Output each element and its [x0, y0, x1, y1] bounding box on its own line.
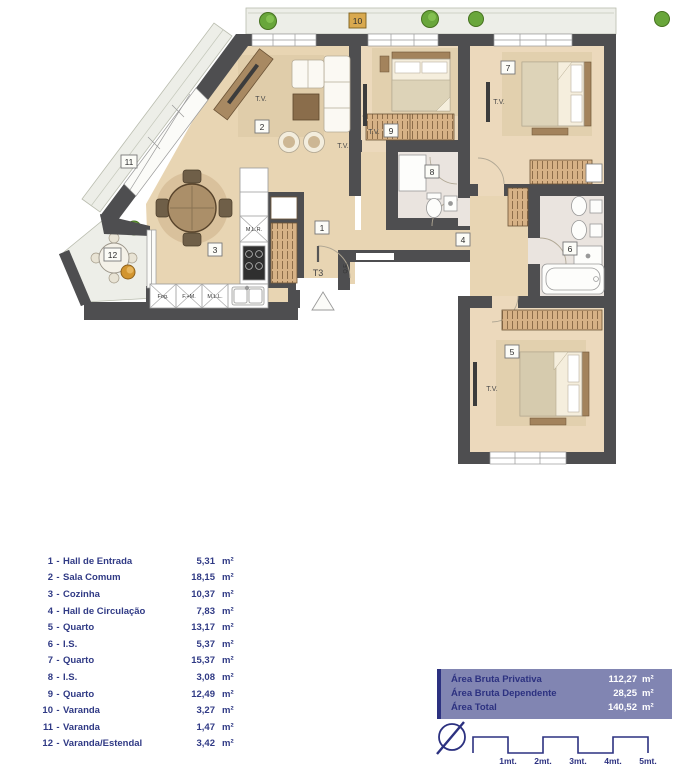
closet-corridor — [508, 188, 528, 226]
scale-tick-label: 5mt. — [639, 756, 656, 766]
window-bedroom9 — [368, 34, 438, 46]
tv-label: T.V. — [486, 386, 497, 393]
tv-wall-bracket — [363, 84, 367, 126]
legend-row: 3-Cozinha10,37m² — [38, 586, 234, 603]
plaque-8: 8 — [430, 167, 435, 177]
plaque-1: 1 — [320, 223, 325, 233]
plaque-9: 9 — [389, 126, 394, 136]
toilet-tank — [590, 224, 602, 237]
stove-label: Fog. — [157, 294, 168, 300]
patio-chair — [109, 273, 119, 283]
nightstand — [380, 56, 389, 72]
electrical-panel-niche — [356, 253, 394, 260]
floor-plan-page: 1 2 3 4 5 6 7 8 9 10 11 12 T.V. — [0, 0, 676, 771]
area-summary-table: Área Bruta Privativa 112,27 m² Área Brut… — [437, 669, 672, 719]
legend-row: 11-Varanda1,47m² — [38, 719, 234, 736]
legend-row: 2-Sala Comum18,15m² — [38, 570, 234, 587]
summary-row: Área Bruta Dependente 28,25 m² — [451, 688, 662, 700]
window-bedroom5 — [490, 452, 566, 464]
scale-tick-label: 4mt. — [604, 756, 621, 766]
scale-tick-label: 2mt. — [534, 756, 551, 766]
bidet — [572, 197, 587, 216]
sofa — [324, 56, 350, 132]
legend-row: 5-Quarto13,17m² — [38, 619, 234, 636]
room-legend: 1-Hall de Entrada5,31m² 2-Sala Comum18,1… — [38, 553, 234, 752]
shower — [399, 155, 426, 191]
summary-row: Área Bruta Privativa 112,27 m² — [451, 674, 662, 686]
scale-bar: 1mt. 2mt. 3mt. 4mt. 5mt. — [473, 737, 657, 766]
shaft-hall — [271, 197, 297, 219]
plaque-4: 4 — [461, 235, 466, 245]
apartment-type-label: T3 — [313, 268, 324, 278]
scale-tick-label: 1mt. — [499, 756, 516, 766]
cooktop — [243, 246, 265, 280]
plaque-7: 7 — [506, 63, 511, 73]
oven-microwave-label: F.+M. — [182, 294, 196, 300]
wardrobe-bedroom5 — [502, 310, 602, 330]
shaft — [586, 164, 602, 182]
summary-row: Área Total 140,52 m² — [451, 702, 662, 714]
bed-headboard — [582, 352, 589, 416]
tv-label: T.V. — [493, 99, 504, 106]
compass-and-scale: 1mt. 2mt. 3mt. 4mt. 5mt. — [430, 715, 676, 771]
legend-row: 1-Hall de Entrada5,31m² — [38, 553, 234, 570]
north-compass-icon — [437, 722, 465, 754]
plaque-2: 2 — [260, 122, 265, 132]
window-living — [252, 34, 316, 46]
bed-bench — [532, 128, 568, 135]
plaque-11: 11 — [125, 157, 134, 167]
plaque-5: 5 — [510, 347, 515, 357]
legend-row: 7-Quarto15,37m² — [38, 653, 234, 670]
bed-headboard — [392, 52, 450, 59]
tv-label: T.V. — [337, 143, 348, 150]
legend-row: 10-Varanda3,27m² — [38, 702, 234, 719]
dishwasher-label: M.L.L. — [207, 294, 223, 300]
legend-row: 8-I.S.3,08m² — [38, 669, 234, 686]
window-bedroom7 — [494, 34, 572, 46]
legend-row: 6-I.S.5,37m² — [38, 636, 234, 653]
wardrobe-bedroom7 — [530, 160, 592, 184]
glazing-kitchen-west — [147, 230, 156, 288]
plant-icon — [655, 12, 670, 27]
tv-wall-bracket — [486, 82, 490, 122]
plaque-10: 10 — [353, 16, 363, 26]
entry-marker-triangle — [312, 292, 334, 310]
scale-tick-label: 3mt. — [569, 756, 586, 766]
legend-row: 9-Quarto12,49m² — [38, 686, 234, 703]
tv-wall-bracket — [473, 362, 477, 406]
toilet — [572, 221, 587, 240]
coffee-table — [293, 94, 319, 120]
bed-bench — [530, 418, 566, 425]
electrical-panel-label: Q.E. — [343, 262, 349, 273]
floor-plan-drawing: 1 2 3 4 5 6 7 8 9 10 11 12 T.V. — [0, 0, 676, 540]
bed-headboard — [584, 62, 591, 126]
plaque-3: 3 — [213, 245, 218, 255]
legend-row: 4-Hall de Circulação7,83m² — [38, 603, 234, 620]
closet-hall — [271, 223, 297, 283]
plaque-6: 6 — [568, 244, 573, 254]
plaque-12: 12 — [108, 250, 118, 260]
toilet — [427, 199, 442, 218]
tv-label: T.V. — [255, 96, 266, 103]
washing-machine-label: M.L.R. — [246, 227, 263, 233]
legend-row: 12-Varanda/Estendal3,42m² — [38, 736, 234, 753]
tv-label: T.V. — [368, 129, 379, 136]
bidet-back — [590, 200, 602, 213]
plant-icon — [469, 12, 484, 27]
